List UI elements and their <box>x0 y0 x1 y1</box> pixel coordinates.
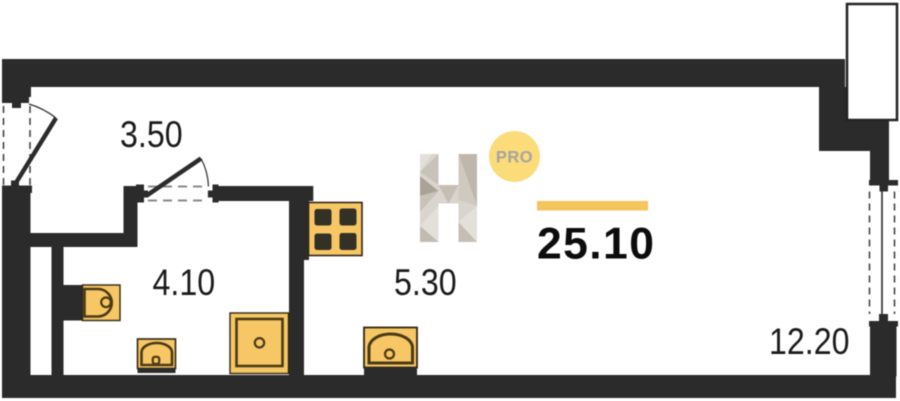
svg-text:3.50: 3.50 <box>120 115 183 156</box>
svg-text:PRO: PRO <box>496 149 533 167</box>
svg-text:5.30: 5.30 <box>394 263 457 304</box>
svg-text:4.10: 4.10 <box>153 263 216 304</box>
svg-text:12.20: 12.20 <box>769 322 850 363</box>
svg-text:25.10: 25.10 <box>537 220 655 269</box>
